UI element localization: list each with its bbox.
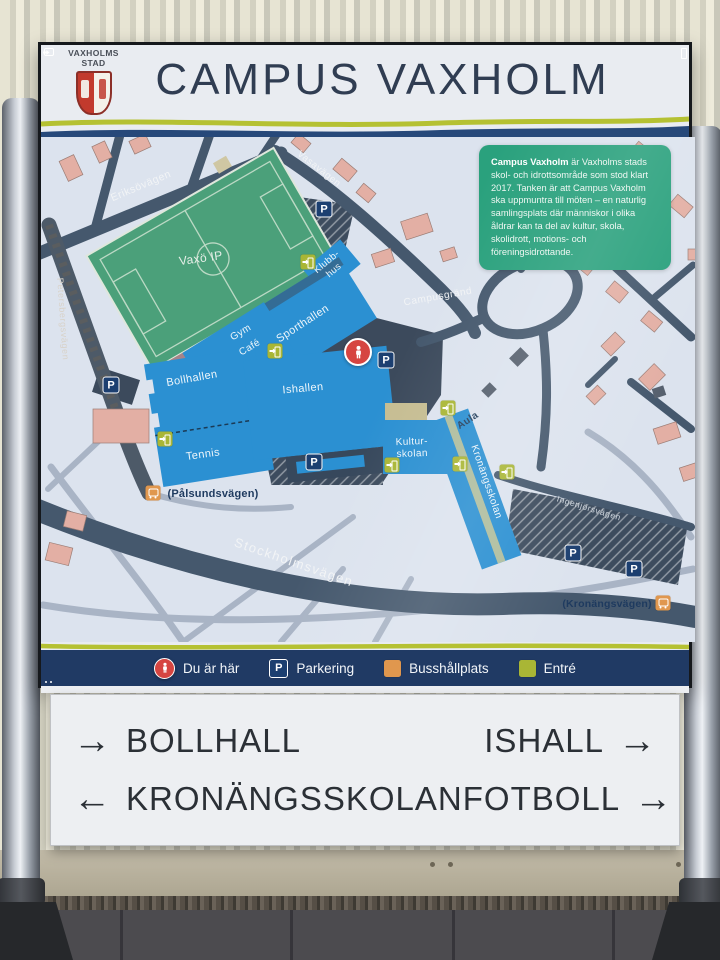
campus-map: Eriksövägen Vasavägen Petersbergsvägen C…: [41, 137, 695, 642]
info-box-text: är Vaxholms stads skol- och idrottsområd…: [491, 157, 648, 257]
logo-text: VAXHOLMS STAD: [68, 49, 119, 69]
parking-icon: P: [306, 454, 323, 471]
legend-item-you-are-here: Du är här: [154, 658, 239, 679]
campus-info-box: Campus Vaxholm är Vaxholms stads skol- o…: [479, 145, 671, 270]
entrance-icon: [519, 660, 536, 677]
sign-footer-strip: [41, 686, 689, 693]
wall-bolt: [430, 862, 435, 867]
campus-map-sign: VAXHOLMS STAD CAMPUS VAXHOLM: [38, 42, 692, 688]
entrance-icon: [441, 401, 456, 416]
you-are-here-icon: [154, 658, 175, 679]
direction-fotboll: FOTBOLL →: [463, 780, 673, 818]
paving-seam: [612, 910, 615, 960]
entrance-icon: [500, 465, 515, 480]
legend-item-entrance: Entré: [519, 660, 576, 677]
direction-label: ISHALL: [484, 722, 604, 760]
sign-title: CAMPUS VAXHOLM: [146, 55, 689, 105]
paving-seam: [120, 910, 123, 960]
arrow-right-icon: →: [73, 722, 112, 760]
info-box-lead: Campus Vaxholm: [491, 157, 569, 167]
bus-stop-icon: [656, 596, 671, 611]
direction-row-2: ← KRONÄNGSSKOLAN FOTBOLL →: [73, 780, 657, 818]
bottom-wave: [41, 642, 689, 650]
entrance-icon: [301, 255, 316, 270]
photo-of-campus-sign: { "header": { "logo_line1": "VAXHOLMS", …: [0, 0, 720, 960]
person-glyph: [351, 345, 366, 360]
arrow-left-icon: ←: [73, 780, 112, 818]
post-collar-right: [679, 878, 720, 906]
direction-kronangsskolan: ← KRONÄNGSSKOLAN: [73, 780, 463, 818]
direction-label: BOLLHALL: [126, 722, 301, 760]
place-label-kulturskolan: Kultur-skolan: [395, 436, 428, 460]
bus-stop-icon: [146, 486, 161, 501]
street-label-palsundsvagen: (Pålsundsvägen): [167, 488, 258, 500]
vaxholm-stad-logo: VAXHOLMS STAD: [41, 45, 146, 115]
post-collar-left: [0, 878, 45, 906]
parking-icon: P: [378, 352, 395, 369]
parking-icon: P: [103, 377, 120, 394]
coat-of-arms-icon: [76, 71, 112, 115]
wave-separator: [41, 115, 689, 137]
parking-icon: P: [626, 561, 643, 578]
wall-bolt: [448, 862, 453, 867]
parking-icon: P: [269, 659, 288, 678]
entrance-icon: [158, 432, 173, 447]
entrance-icon: [268, 344, 283, 359]
you-are-here-icon: [344, 338, 372, 366]
direction-label: KRONÄNGSSKOLAN: [126, 780, 463, 818]
direction-sign-panel: → BOLLHALL ISHALL → ← KRONÄNGSSKOLAN FOT…: [50, 694, 680, 846]
legend-item-parking: P Parkering: [269, 659, 354, 678]
direction-bollhall: → BOLLHALL: [73, 722, 301, 760]
entrance-icon: [385, 458, 400, 473]
street-label-kronangsvagen: (Kronängsvägen): [562, 598, 651, 610]
direction-label: FOTBOLL: [463, 780, 620, 818]
entrance-icon: [453, 457, 468, 472]
legend-item-bus: Busshållplats: [384, 660, 489, 677]
arrow-right-icon: →: [634, 780, 673, 818]
bus-stop-icon: [384, 660, 401, 677]
parking-icon: P: [316, 201, 333, 218]
sign-post-left: [2, 98, 40, 960]
map-legend: Du är här P Parkering Busshållplats Entr…: [41, 650, 689, 686]
direction-row-1: → BOLLHALL ISHALL →: [73, 722, 657, 760]
paving-seam: [290, 910, 293, 960]
sign-header: VAXHOLMS STAD CAMPUS VAXHOLM: [41, 45, 689, 115]
arrow-right-icon: →: [618, 722, 657, 760]
paving-seam: [452, 910, 455, 960]
direction-ishall: ISHALL →: [484, 722, 657, 760]
concrete-base: [0, 850, 720, 902]
parking-icon: P: [565, 545, 582, 562]
wall-bolt: [676, 862, 681, 867]
